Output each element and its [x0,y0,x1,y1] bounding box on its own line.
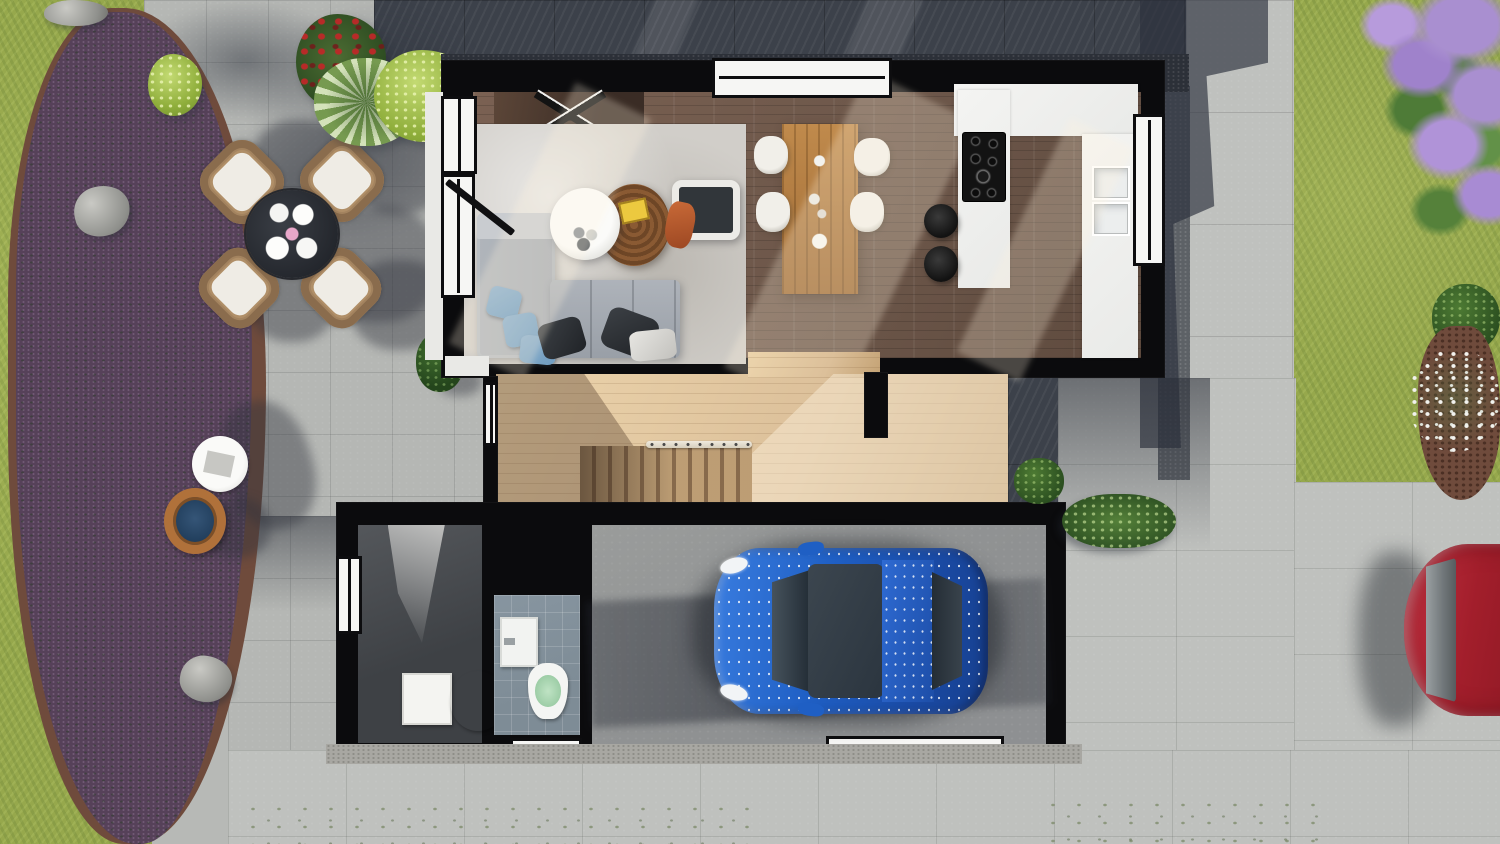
shade-mid-right [1058,378,1210,582]
bar-stool-a [924,204,958,238]
blue-car-roof [882,560,934,702]
window-north [712,58,892,98]
hall-window-left [483,382,498,446]
pillow-gray [629,328,678,363]
dining-chair-a [754,136,788,174]
stair-rail-top [646,441,752,448]
bottom-tufts-b [1040,796,1320,844]
bottom-tufts-a [240,800,760,844]
dining-chair-c [756,192,790,232]
washing-machine [402,673,452,725]
fire-bowl [164,488,226,554]
wc-sink [500,617,538,667]
window-west-lower [336,556,362,634]
bush-garage-east [1062,494,1176,548]
blue-car-rear-glass [932,572,962,690]
window-east [1133,114,1165,266]
sw-sill [445,356,489,376]
blue-car-sunroof [808,564,884,698]
window-west [441,96,477,174]
floorplan-render-canvas [0,0,1500,844]
toilet [528,663,568,719]
lilac-tree [1314,0,1500,250]
cooktop [963,133,1005,201]
bush-garage-ne [1014,458,1064,504]
patio-table [246,190,338,278]
gravel-south [326,744,1082,764]
red-car-windshield [1426,558,1456,702]
blue-car-windshield [772,570,810,692]
hall-wall-stub [864,372,888,438]
flowerbed-white-flowers [1408,348,1500,452]
side-table [192,436,248,492]
bar-stool-b [924,246,958,282]
rock-top [44,0,108,26]
